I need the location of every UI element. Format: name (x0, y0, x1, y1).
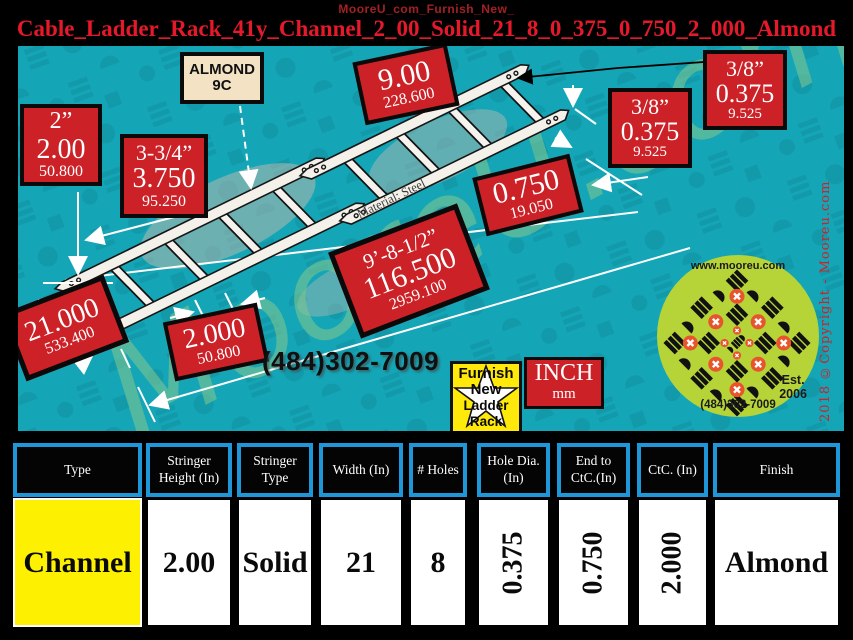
col-header-hole-dia: Hole Dia. (In) (477, 443, 550, 497)
col-header-end-to-ctc: End to CtC.(In) (557, 443, 630, 497)
units-mm: mm (527, 386, 601, 402)
value-holes: 8 (411, 500, 465, 625)
value-width: 21 (321, 500, 401, 625)
page-title: Cable_Ladder_Rack_41y_Channel_2_00_Solid… (0, 16, 853, 42)
col-header-width: Width (In) (319, 443, 403, 497)
logo-phone: (484)302-7009 (657, 399, 819, 411)
phone-number: (484)302-7009 (262, 346, 439, 377)
page-subtitle: MooreU_com_Furnish_New_ (0, 2, 853, 16)
value-ctc: 2.000 (639, 500, 706, 625)
mooreu-logo: www.mooreu.com (657, 255, 819, 417)
furnish-new-tag: Furnish New Ladder Rack (450, 361, 522, 431)
value-end-to-ctc: 0.750 (559, 500, 628, 625)
technical-drawing-area: MooreU.com (18, 46, 844, 431)
units-inch: INCH (527, 360, 601, 386)
dim-box-stringer-height: 2” 2.00 50.800 (20, 104, 102, 186)
col-header-ctc: CtC. (In) (637, 443, 708, 497)
finish-color-name: ALMOND (184, 62, 260, 79)
dim-box-hole-dia-top: 3/8” 0.375 9.525 (703, 50, 787, 130)
col-header-stringer-height: Stringer Height (In) (146, 443, 232, 497)
value-finish: Almond (715, 500, 838, 625)
finish-color-code: 9C (184, 78, 260, 95)
value-stringer-height: 2.00 (148, 500, 230, 625)
finish-color-tag: ALMOND 9C (180, 52, 264, 104)
value-stringer-type: Solid (239, 500, 311, 625)
furnish-new-text: Furnish New Ladder Rack (453, 366, 519, 430)
col-header-stringer-type: Stringer Type (237, 443, 313, 497)
logo-established: Est. 2006 (779, 373, 807, 401)
dim-box-rung-spacing: 3-3/4” 3.750 95.250 (120, 134, 208, 218)
copyright-text: 2018 ©Copyright - Mooreu.com (818, 62, 833, 422)
units-tag: INCH mm (524, 357, 604, 409)
product-spec-sheet: MooreU_com_Furnish_New_ Cable_Ladder_Rac… (0, 0, 853, 640)
spec-table: Type Channel Stringer Height (In) 2.00 S… (0, 441, 853, 640)
value-type: Channel (15, 500, 140, 625)
col-header-finish: Finish (713, 443, 840, 497)
dim-box-hole-dia-mid: 3/8” 0.375 9.525 (608, 88, 692, 168)
col-header-holes: # Holes (409, 443, 467, 497)
col-header-type: Type (13, 443, 142, 497)
value-hole-dia: 0.375 (479, 500, 548, 625)
